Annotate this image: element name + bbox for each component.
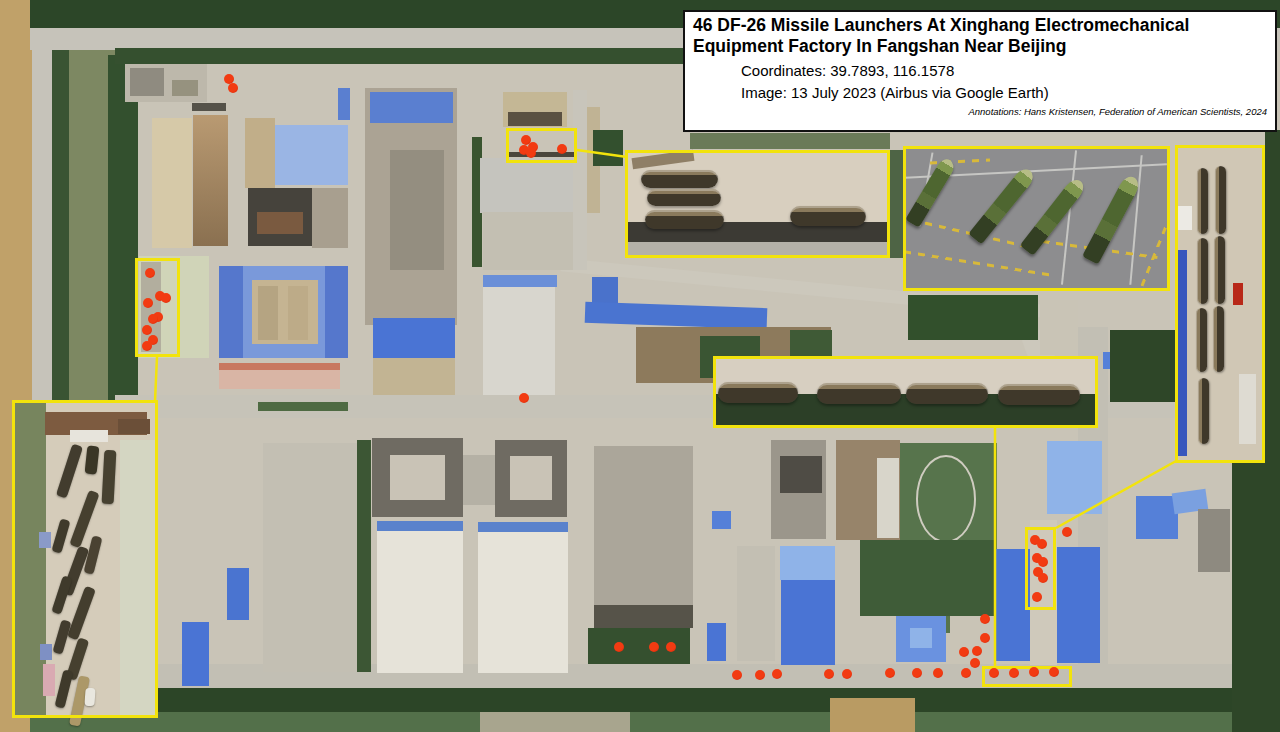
launcher-marker-dot bbox=[1029, 667, 1039, 677]
launcher-marker-dot bbox=[666, 642, 676, 652]
launcher-marker-dot bbox=[1038, 557, 1048, 567]
annotation-credit-text: Annotations: Hans Kristensen, Federation… bbox=[693, 106, 1267, 117]
launcher-marker-dot bbox=[614, 642, 624, 652]
launcher-marker-dot bbox=[228, 83, 238, 93]
launcher-marker-dot bbox=[649, 642, 659, 652]
launcher-marker-dot bbox=[148, 314, 158, 324]
launcher-marker-dot bbox=[732, 670, 742, 680]
launcher-marker-dot bbox=[1037, 539, 1047, 549]
launcher-marker-dot bbox=[519, 393, 529, 403]
coordinates-text: Coordinates: 39.7893, 116.1578 bbox=[741, 62, 1267, 79]
launcher-marker-dot bbox=[1062, 527, 1072, 537]
launcher-marker-dot bbox=[161, 293, 171, 303]
annotated-satellite-image: 46 DF-26 Missile Launchers At Xinghang E… bbox=[0, 0, 1280, 732]
launcher-marker-dot bbox=[142, 325, 152, 335]
launcher-marker-dot bbox=[961, 668, 971, 678]
launcher-marker-dot bbox=[980, 633, 990, 643]
launcher-marker-dot bbox=[1049, 667, 1059, 677]
launcher-marker-dot bbox=[772, 669, 782, 679]
launcher-marker-dot bbox=[145, 268, 155, 278]
launcher-marker-dot bbox=[885, 668, 895, 678]
launcher-marker-dot bbox=[755, 670, 765, 680]
launcher-marker-dot bbox=[970, 658, 980, 668]
launcher-marker-dot bbox=[1038, 573, 1048, 583]
launcher-marker-dot bbox=[972, 646, 982, 656]
launcher-marker-dot bbox=[526, 148, 536, 158]
title-text: 46 DF-26 Missile Launchers At Xinghang E… bbox=[693, 15, 1267, 57]
launcher-marker-dot bbox=[142, 341, 152, 351]
launcher-marker-dot bbox=[824, 669, 834, 679]
launcher-marker-dot bbox=[557, 144, 567, 154]
title-box: 46 DF-26 Missile Launchers At Xinghang E… bbox=[683, 10, 1277, 132]
launcher-marker-dot bbox=[1032, 592, 1042, 602]
image-date-text: Image: 13 July 2023 (Airbus via Google E… bbox=[741, 84, 1267, 101]
launcher-marker-dot bbox=[842, 669, 852, 679]
launcher-marker-dot bbox=[959, 647, 969, 657]
launcher-marker-dot bbox=[143, 298, 153, 308]
launcher-marker-dot bbox=[1009, 668, 1019, 678]
launcher-marker-dot bbox=[980, 614, 990, 624]
launcher-marker-dot bbox=[933, 668, 943, 678]
launcher-marker-dot bbox=[912, 668, 922, 678]
launcher-marker-dot bbox=[989, 668, 999, 678]
